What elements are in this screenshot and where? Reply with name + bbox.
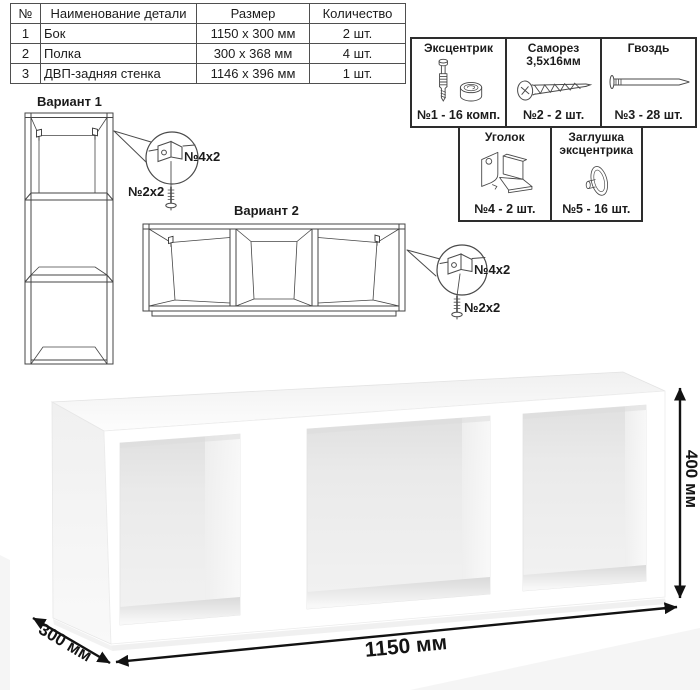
hardware-item-count: №3 - 28 шт. xyxy=(614,108,682,122)
screw-detail-icon xyxy=(166,187,176,210)
hardware-item-count: №2 - 2 шт. xyxy=(523,108,584,122)
col-header-quantity: Количество xyxy=(310,4,406,24)
hardware-box-row1: Эксцентрик №1 - 16 комп. Саморез 3,5х16м… xyxy=(410,37,697,128)
hardware-item-count: №1 - 16 комп. xyxy=(417,108,500,122)
variant2-shelf-drawing xyxy=(143,224,405,316)
part-number: 1 xyxy=(11,24,41,44)
part-number: 3 xyxy=(11,64,41,84)
hardware-item-count: №4 - 2 шт. xyxy=(474,202,535,216)
part-number: 2 xyxy=(11,44,41,64)
callout1-screw-label: №2х2 xyxy=(128,184,164,199)
cam-cover-icon xyxy=(570,158,622,202)
col-header-number: № xyxy=(11,4,41,24)
render-left-face xyxy=(52,402,111,644)
eccentric-cam-icon xyxy=(423,57,495,107)
table-row: 2 Полка 300 x 368 мм 4 шт. xyxy=(11,44,406,64)
hardware-item-nail: Гвоздь №3 - 28 шт. xyxy=(600,39,695,126)
callout1-bracket-label: №4х2 xyxy=(184,149,220,164)
col-header-name: Наименование детали xyxy=(41,4,197,24)
hardware-item-title: Эксцентрик xyxy=(424,42,493,55)
render-opening-2 xyxy=(307,416,490,609)
corner-bracket-marker-icon xyxy=(37,128,98,140)
part-name: Полка xyxy=(41,44,197,64)
hardware-item-screw: Саморез 3,5х16мм №2 - 2 шт. xyxy=(505,39,600,126)
part-name: ДВП-задняя стенка xyxy=(41,64,197,84)
nail-icon xyxy=(605,70,693,94)
height-dimension-label: 400 мм xyxy=(681,437,700,521)
callout2-screw-label: №2х2 xyxy=(464,300,500,315)
hardware-item-title: Гвоздь xyxy=(628,42,670,55)
part-size: 1150 x 300 мм xyxy=(197,24,310,44)
render-opening-1 xyxy=(120,434,240,625)
assembly-instruction-sheet: № Наименование детали Размер Количество … xyxy=(0,0,700,690)
variant1-shelf-drawing xyxy=(25,113,113,364)
hardware-item-title: Уголок xyxy=(485,131,525,144)
hardware-item-corner-bracket: Уголок №4 - 2 шт. xyxy=(460,128,550,220)
parts-table-header-row: № Наименование детали Размер Количество xyxy=(11,4,406,24)
table-row: 3 ДВП-задняя стенка 1146 x 396 мм 1 шт. xyxy=(11,64,406,84)
variant1-title: Вариант 1 xyxy=(37,94,102,109)
part-size: 1146 x 396 мм xyxy=(197,64,310,84)
hardware-item-title: Заглушка эксцентрика xyxy=(554,131,640,158)
callout2-bracket-label: №4х2 xyxy=(474,262,510,277)
hardware-box-row2: Уголок №4 - 2 шт. Заглушка эксцентрика xyxy=(458,126,643,222)
table-row: 1 Бок 1150 x 300 мм 2 шт. xyxy=(11,24,406,44)
part-size: 300 x 368 мм xyxy=(197,44,310,64)
hardware-item-count: №5 - 16 шт. xyxy=(562,202,630,216)
corner-bracket-marker-icon xyxy=(169,235,380,246)
hardware-item-cam-cover: Заглушка эксцентрика №5 - 16 шт. xyxy=(550,128,642,220)
screw-detail-icon xyxy=(452,296,462,319)
screw-icon xyxy=(512,69,596,107)
part-quantity: 1 шт. xyxy=(310,64,406,84)
part-quantity: 4 шт. xyxy=(310,44,406,64)
variant2-title: Вариант 2 xyxy=(234,203,299,218)
parts-table: № Наименование детали Размер Количество … xyxy=(10,3,406,84)
corner-bracket-icon xyxy=(467,147,543,199)
hardware-item-eccentric: Эксцентрик №1 - 16 комп. xyxy=(412,39,505,126)
col-header-size: Размер xyxy=(197,4,310,24)
part-name: Бок xyxy=(41,24,197,44)
part-quantity: 2 шт. xyxy=(310,24,406,44)
render-opening-3 xyxy=(523,405,646,591)
hardware-item-title: Саморез 3,5х16мм xyxy=(509,42,598,69)
